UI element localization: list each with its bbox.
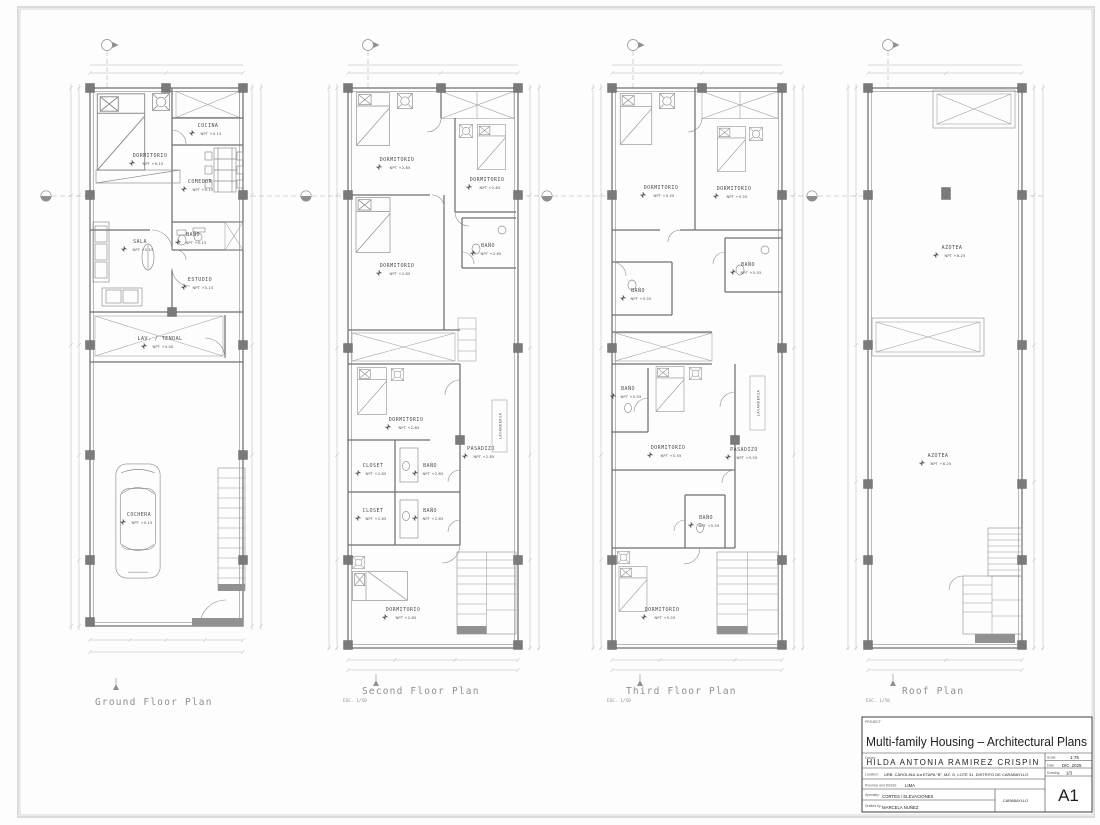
title-block: PROJECT Multi-family Housing – Architect…	[862, 717, 1092, 812]
room-label: AZOTEA	[942, 245, 963, 251]
level-label: NPT +5.55	[654, 616, 675, 620]
drawing-sheet: DORMITORIO NPT +0.15 COCINA NPT +0.15 CO…	[0, 0, 1100, 825]
scale-value: 1:75	[1070, 755, 1079, 760]
plan-title: Third Floor Plan	[626, 686, 737, 697]
province-label: Province and District:	[865, 784, 897, 788]
room-label: BAÑO	[423, 462, 437, 469]
level-label: NPT +5.55	[653, 194, 674, 198]
room-label: ESTUDIO	[188, 277, 212, 283]
stove-icon	[660, 94, 675, 109]
bed-icon	[356, 198, 390, 253]
section-marker-icon	[542, 191, 552, 201]
columns	[344, 84, 523, 650]
level-label: NPT +2.85	[365, 517, 386, 521]
level-label: NPT +0.15	[131, 521, 152, 525]
bathroom-fixtures-icon	[625, 246, 770, 533]
project-title: Multi-family Housing – Architectural Pla…	[866, 735, 1087, 749]
section-marker-icon	[41, 191, 51, 201]
bed-icon	[620, 94, 652, 145]
plan-scale: ESC. 1/50	[607, 698, 631, 704]
level-label: NPT +2.85	[365, 472, 386, 476]
ground-floor-plan: DORMITORIO NPT +0.15 COCINA NPT +0.15 CO…	[41, 40, 300, 709]
second-floor-plan: DORMITORIO NPT +2.85 DORMITORIO NPT +2.8…	[301, 40, 541, 705]
location-label: Location:	[865, 773, 879, 777]
room-label: DORMITORIO	[644, 185, 679, 191]
bed-icon	[656, 367, 684, 412]
plan-title: Second Floor Plan	[362, 686, 480, 697]
room-label: BAÑO	[631, 287, 645, 294]
level-label: NPT +5.55	[740, 271, 761, 275]
level-label: NPT +0.15	[142, 162, 163, 166]
level-label: NPT +0.15	[200, 132, 221, 136]
drafted-by-label: Drafted by:	[865, 804, 882, 808]
level-label: NPT +2.85	[422, 472, 443, 476]
specialty-label: Specialty:	[865, 793, 880, 797]
bed-icon	[357, 93, 390, 146]
level-label: NPT +2.85	[398, 426, 419, 430]
grid-bubble-icon	[628, 40, 639, 51]
north-arrow-icon	[113, 684, 119, 690]
level-label: NPT +0.00	[152, 345, 174, 349]
level-label: NPT +5.55	[630, 297, 651, 301]
level-label: NPT +2.85	[480, 252, 501, 256]
room-label: DORMITORIO	[389, 417, 424, 423]
province-value: LIMA	[905, 783, 915, 788]
level-label: NPT +8.25	[944, 254, 965, 258]
room-label: LAV. / TENDAL	[138, 336, 183, 342]
level-label: NPT +2.85	[422, 517, 443, 521]
closet-box-icon	[617, 551, 629, 563]
staircase	[457, 552, 516, 634]
level-label: NPT +5.55	[736, 456, 757, 460]
room-label: DORMITORIO	[470, 177, 505, 183]
room-label: BAÑO	[186, 231, 200, 238]
scale-label: Scale	[1047, 756, 1056, 760]
stove-icon	[391, 368, 403, 380]
plan-scale: ESC. 1/50	[866, 698, 890, 704]
drawing-label: Drawing	[1047, 771, 1060, 775]
bed-icon	[619, 567, 647, 612]
plan-title: Ground Floor Plan	[95, 697, 213, 708]
room-label: COCHERA	[127, 512, 151, 518]
room-label: DORMITORIO	[645, 607, 680, 613]
date-value: DIC. 2025	[1062, 763, 1082, 768]
room-label: DORMITORIO	[133, 153, 168, 159]
closet-box-icon	[459, 124, 472, 137]
plan-scale: ESC. 1/50	[343, 698, 367, 704]
room-label: BAÑO	[423, 507, 437, 514]
level-label: NPT +2.85	[389, 166, 410, 170]
third-floor-plan: DORMITORIO NPT +5.55 DORMITORIO NPT +5.5…	[542, 40, 806, 705]
stamp-value: CARABAYLLO	[1003, 799, 1028, 803]
stove-icon	[398, 94, 413, 109]
level-label: NPT +2.85	[389, 272, 410, 276]
level-label: NPT +2.85	[473, 455, 494, 459]
drawing-value: 1/3	[1066, 770, 1073, 775]
level-label: NPT +0.15	[192, 188, 213, 192]
section-marker-icon	[301, 191, 311, 201]
staircase	[717, 552, 778, 634]
level-label: NPT +5.55	[660, 454, 681, 458]
sheet-number: A1	[1058, 786, 1079, 805]
room-label: DORMITORIO	[717, 186, 752, 192]
project-label: PROJECT	[865, 720, 881, 724]
room-label: BAÑO	[481, 242, 495, 249]
room-label: PASADIZO	[730, 447, 758, 453]
room-label: SALA	[133, 239, 147, 245]
stove-icon	[689, 367, 701, 379]
level-label: NPT +5.55	[726, 195, 747, 199]
grid-bubble-icon	[102, 40, 113, 51]
room-label: CLOSET	[363, 463, 384, 469]
grid-bubble-icon	[883, 40, 894, 51]
level-label: NPT +2.85	[395, 616, 416, 620]
room-label: DORMITORIO	[380, 157, 415, 163]
room-label: DORMITORIO	[651, 445, 686, 451]
closet-box-icon	[749, 127, 762, 140]
room-label: DORMITORIO	[380, 263, 415, 269]
roof-opening	[872, 318, 984, 356]
stove-icon	[153, 94, 170, 111]
grid-bubble-icon	[363, 40, 374, 51]
sofa-icon	[93, 222, 109, 282]
level-label: NPT +0.15	[132, 248, 153, 252]
level-label: NPT +0.15	[185, 241, 206, 245]
plan-canvas: DORMITORIO NPT +0.15 COCINA NPT +0.15 CO…	[0, 0, 1100, 825]
columns	[864, 84, 1027, 650]
room-label: COCINA	[198, 123, 219, 129]
loveseat-icon	[102, 288, 142, 306]
north-arrow-icon	[890, 680, 896, 686]
owner-value: HILDA ANTONIA RAMIREZ CRISPIN	[866, 758, 1039, 767]
section-marker-icon	[807, 191, 817, 201]
specialty-value: CORTES / ELEVACIONES	[882, 794, 934, 799]
staircase	[963, 528, 1022, 643]
room-label: CLOSET	[363, 508, 384, 514]
plan-title: Roof Plan	[902, 686, 964, 697]
room-label: AZOTEA	[928, 453, 949, 459]
level-label: NPT +5.55	[620, 395, 641, 399]
level-label: NPT +5.55	[698, 524, 719, 528]
staircase	[218, 468, 245, 591]
room-label: DORMITORIO	[386, 607, 421, 613]
bed-icon	[358, 368, 387, 415]
date-label: Date	[1047, 764, 1054, 768]
room-label: LAVANDERIA	[499, 412, 503, 439]
room-label: LAVANDERIA	[757, 389, 761, 416]
level-label: NPT +8.25	[930, 462, 951, 466]
room-label: PASADIZO	[467, 446, 495, 452]
room-label: BAÑO	[699, 514, 713, 521]
level-label: NPT +0.15	[192, 286, 213, 290]
roof-plan: AZOTEA NPT +8.25 AZOTEA NPT +8.25 Roof P…	[807, 40, 1045, 705]
bed-icon	[718, 126, 746, 171]
room-label: COMEDOR	[188, 179, 213, 185]
roof-opening	[933, 90, 1015, 128]
columns	[608, 84, 787, 650]
room-label: BAÑO	[621, 385, 635, 392]
room-label: BAÑO	[741, 261, 755, 268]
bed-icon	[478, 124, 506, 169]
closet-box-icon	[352, 556, 364, 568]
level-label: NPT +2.85	[479, 186, 500, 190]
location-value: URB. CAROLINA 1ra ETAPA "B", MZ. G, LOTE…	[884, 772, 1028, 777]
drafted-by-value: MARCELA NUÑEZ	[882, 805, 919, 810]
bed-icon	[353, 572, 408, 601]
